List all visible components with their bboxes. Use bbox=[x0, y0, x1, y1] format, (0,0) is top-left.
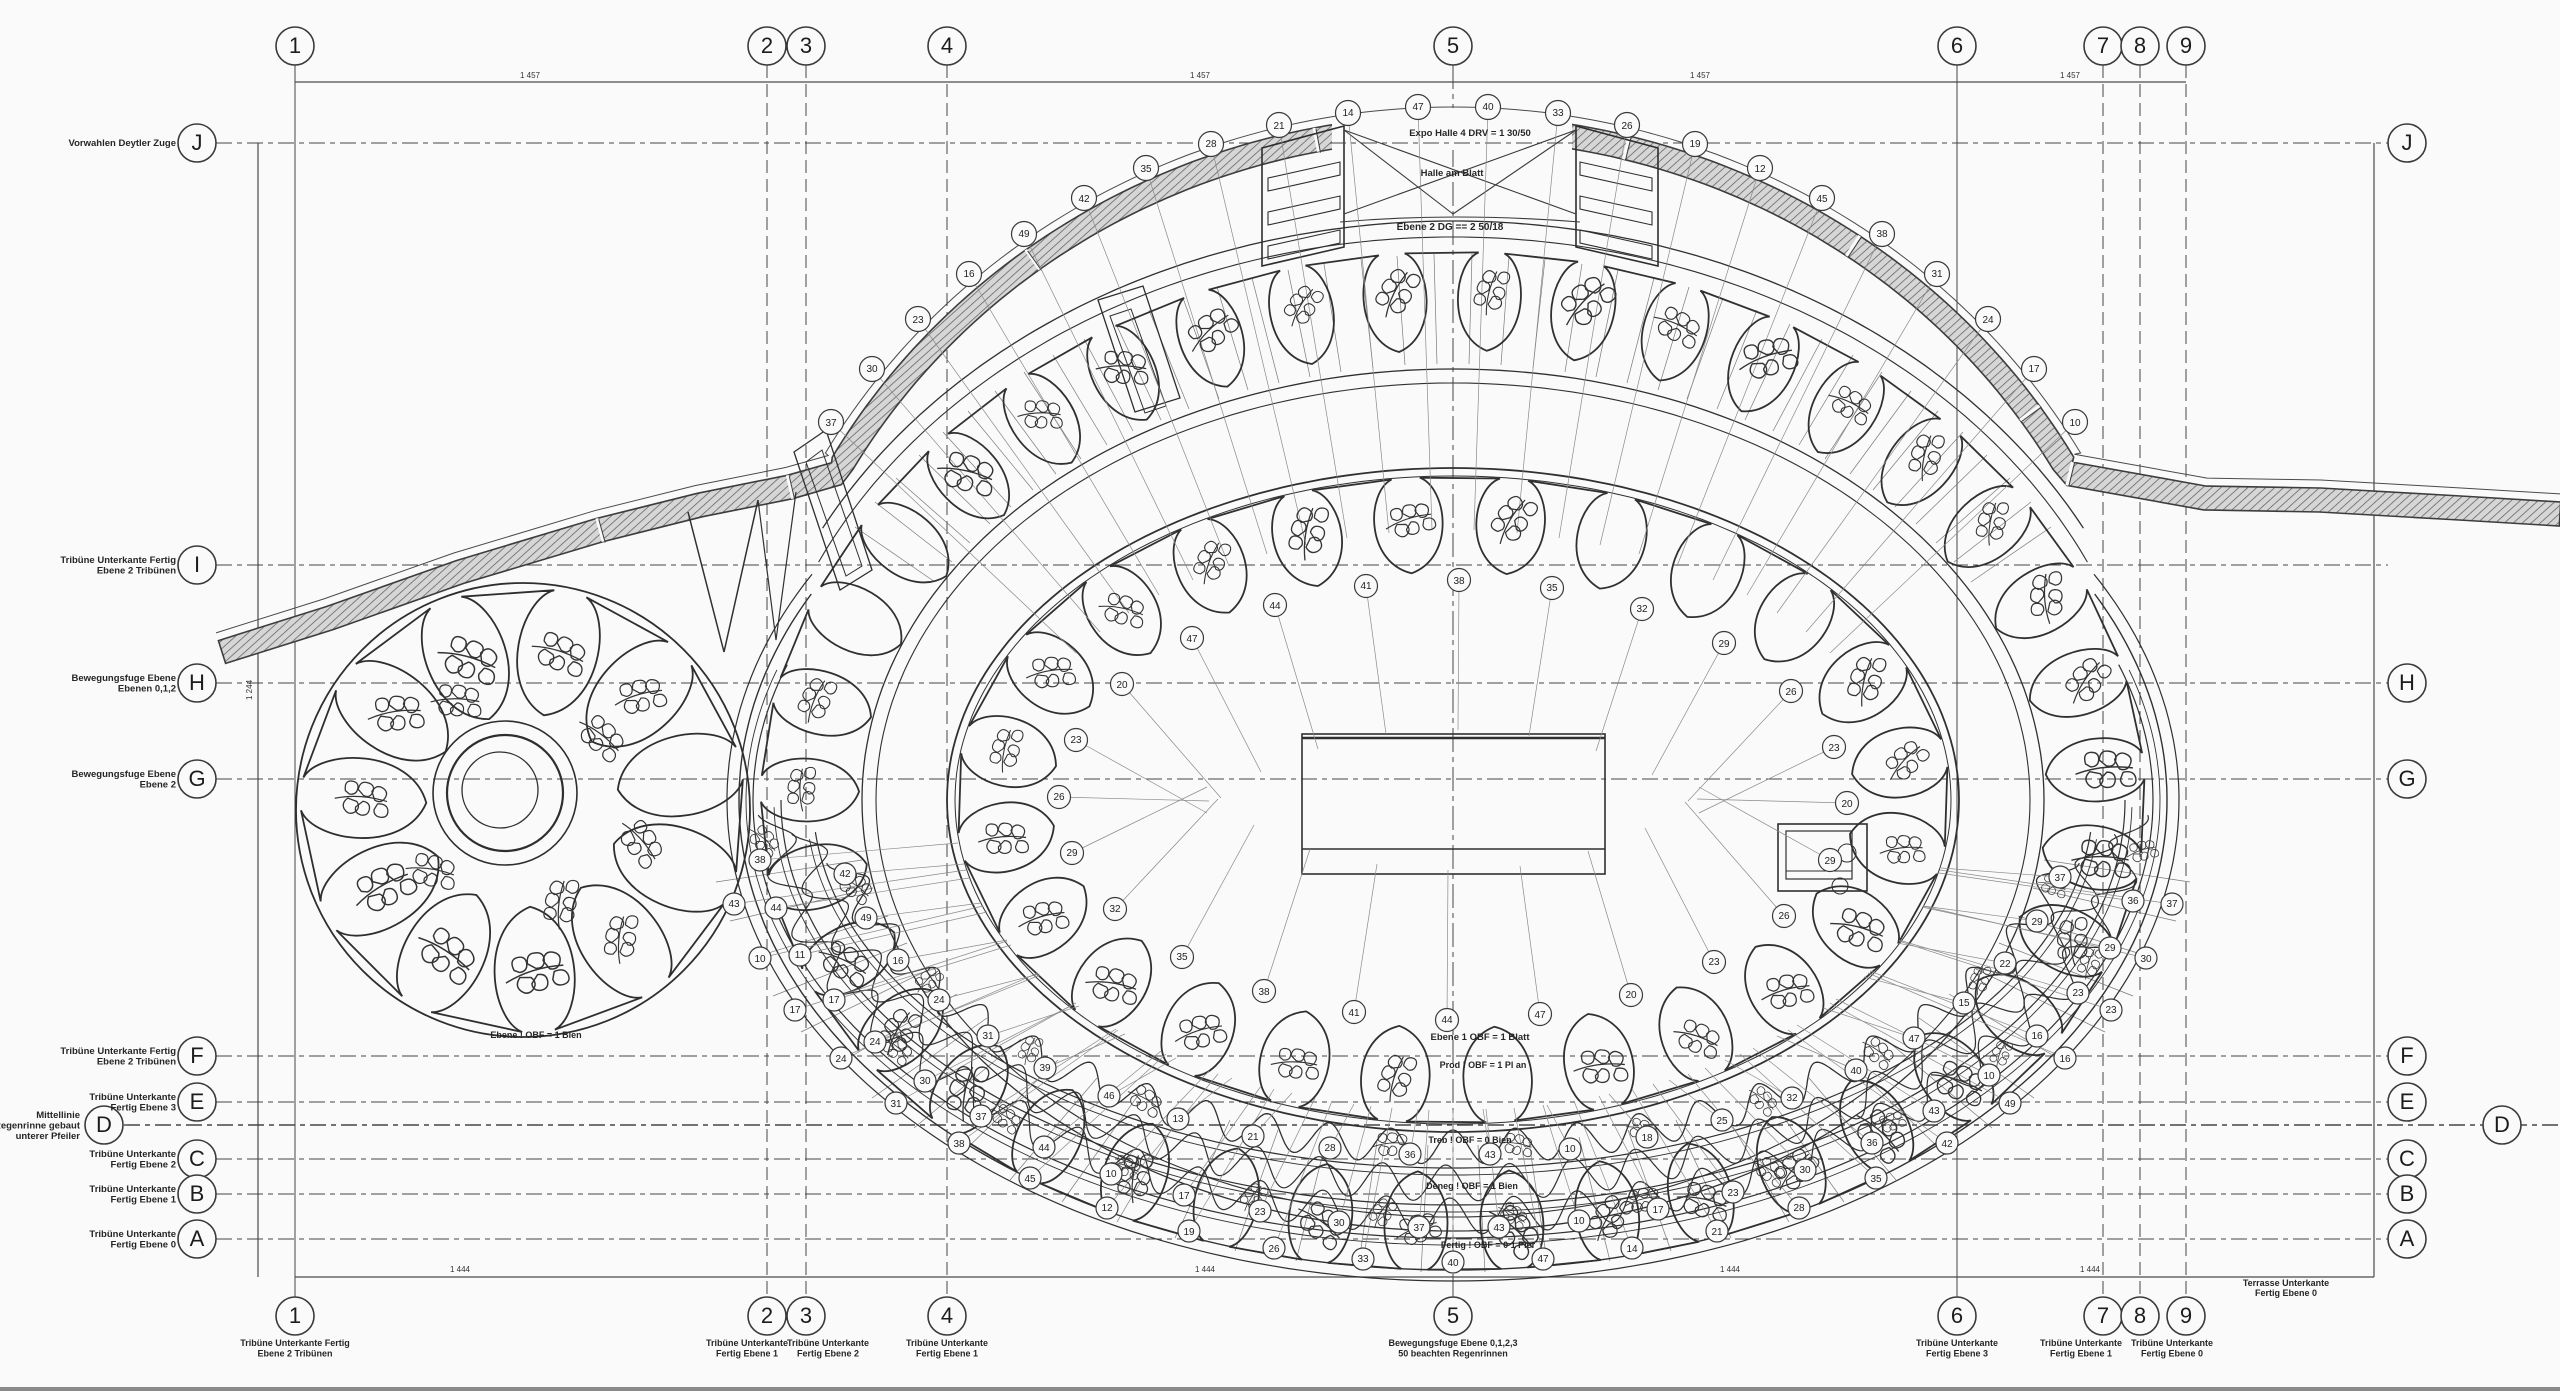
svg-text:30: 30 bbox=[919, 1076, 931, 1087]
svg-text:Fertig Ebene 3: Fertig Ebene 3 bbox=[111, 1103, 176, 1114]
svg-text:4: 4 bbox=[941, 1303, 953, 1328]
svg-text:Tribüne Unterkante: Tribüne Unterkante bbox=[2040, 1338, 2122, 1348]
svg-text:43: 43 bbox=[728, 899, 740, 910]
svg-text:Bewegungsfuge Ebene: Bewegungsfuge Ebene bbox=[71, 769, 176, 780]
svg-text:Tribüne Unterkante: Tribüne Unterkante bbox=[906, 1338, 988, 1348]
svg-text:Regenrinne gebaut: Regenrinne gebaut bbox=[0, 1121, 81, 1132]
svg-text:21: 21 bbox=[1711, 1227, 1723, 1238]
svg-text:Deneg ! OBF = 1 Bien: Deneg ! OBF = 1 Bien bbox=[1426, 1181, 1518, 1191]
svg-text:23: 23 bbox=[1070, 735, 1082, 746]
svg-text:41: 41 bbox=[1348, 1008, 1360, 1019]
svg-text:31: 31 bbox=[982, 1031, 994, 1042]
svg-text:2: 2 bbox=[761, 33, 773, 58]
svg-text:17: 17 bbox=[789, 1005, 801, 1016]
svg-text:24: 24 bbox=[1982, 315, 1994, 326]
svg-text:Fertig Ebene 0: Fertig Ebene 0 bbox=[111, 1240, 176, 1251]
svg-text:unterer Pfeiler: unterer Pfeiler bbox=[16, 1131, 81, 1142]
svg-text:Bewegungsfuge Ebene 0,1,2,3: Bewegungsfuge Ebene 0,1,2,3 bbox=[1388, 1338, 1517, 1348]
svg-text:35: 35 bbox=[1176, 952, 1188, 963]
svg-text:1 444: 1 444 bbox=[1195, 1265, 1216, 1274]
svg-text:44: 44 bbox=[770, 903, 782, 914]
svg-text:49: 49 bbox=[2004, 1099, 2016, 1110]
svg-text:Tribüne Unterkante Fertig: Tribüne Unterkante Fertig bbox=[240, 1338, 350, 1348]
svg-text:23: 23 bbox=[1828, 743, 1840, 754]
svg-text:1 457: 1 457 bbox=[2060, 71, 2081, 80]
svg-text:23: 23 bbox=[1727, 1188, 1739, 1199]
svg-text:30: 30 bbox=[866, 364, 878, 375]
svg-text:28: 28 bbox=[1324, 1143, 1336, 1154]
svg-text:37: 37 bbox=[975, 1112, 987, 1123]
svg-text:45: 45 bbox=[1816, 194, 1828, 205]
svg-text:26: 26 bbox=[1785, 687, 1797, 698]
svg-text:46: 46 bbox=[1103, 1091, 1115, 1102]
svg-text:1 444: 1 444 bbox=[450, 1265, 471, 1274]
svg-text:6: 6 bbox=[1951, 33, 1963, 58]
svg-text:18: 18 bbox=[1641, 1133, 1653, 1144]
svg-text:42: 42 bbox=[839, 869, 851, 880]
svg-text:24: 24 bbox=[869, 1037, 881, 1048]
svg-text:Tribüne Unterkante: Tribüne Unterkante bbox=[89, 1229, 176, 1240]
svg-text:Fertig Ebene 1: Fertig Ebene 1 bbox=[111, 1195, 177, 1206]
svg-text:Fertig Ebene 0: Fertig Ebene 0 bbox=[2141, 1349, 2203, 1359]
svg-text:29: 29 bbox=[1066, 848, 1078, 859]
svg-text:1: 1 bbox=[289, 1303, 301, 1328]
svg-text:Fertig Ebene 2: Fertig Ebene 2 bbox=[111, 1160, 176, 1171]
svg-text:37: 37 bbox=[1413, 1223, 1425, 1234]
svg-text:43: 43 bbox=[1493, 1223, 1505, 1234]
svg-text:A: A bbox=[190, 1226, 205, 1251]
svg-text:23: 23 bbox=[2105, 1005, 2117, 1016]
svg-text:36: 36 bbox=[1866, 1138, 1878, 1149]
svg-text:5: 5 bbox=[1447, 33, 1459, 58]
svg-text:49: 49 bbox=[1018, 229, 1030, 240]
svg-text:31: 31 bbox=[1931, 269, 1943, 280]
svg-text:14: 14 bbox=[1342, 108, 1354, 119]
svg-text:Tribüne Unterkante: Tribüne Unterkante bbox=[89, 1184, 176, 1195]
svg-text:C: C bbox=[189, 1146, 205, 1171]
svg-text:16: 16 bbox=[2059, 1054, 2071, 1065]
svg-text:37: 37 bbox=[2166, 899, 2178, 910]
svg-text:Tribüne Unterkante: Tribüne Unterkante bbox=[2131, 1338, 2213, 1348]
svg-text:8: 8 bbox=[2134, 1303, 2146, 1328]
svg-text:20: 20 bbox=[1841, 799, 1853, 810]
svg-text:Fertig ! OBF = 0 1 Pier: Fertig ! OBF = 0 1 Pier bbox=[1441, 1240, 1536, 1250]
svg-text:25: 25 bbox=[1716, 1116, 1728, 1127]
svg-text:36: 36 bbox=[2127, 896, 2139, 907]
svg-text:Tribüne Unterkante Fertig: Tribüne Unterkante Fertig bbox=[60, 1046, 176, 1057]
svg-text:29: 29 bbox=[2031, 917, 2043, 928]
svg-text:26: 26 bbox=[1268, 1244, 1280, 1255]
svg-text:24: 24 bbox=[933, 995, 945, 1006]
svg-text:38: 38 bbox=[953, 1139, 965, 1150]
svg-text:Fertig Ebene 1: Fertig Ebene 1 bbox=[716, 1349, 778, 1359]
svg-text:Bewegungsfuge Ebene: Bewegungsfuge Ebene bbox=[71, 673, 176, 684]
svg-text:Ebenen 0,1,2: Ebenen 0,1,2 bbox=[118, 684, 176, 695]
svg-text:C: C bbox=[2399, 1146, 2415, 1171]
svg-text:10: 10 bbox=[2069, 418, 2081, 429]
svg-text:44: 44 bbox=[1441, 1015, 1453, 1026]
svg-text:Ebene 2 DG == 2 50/18: Ebene 2 DG == 2 50/18 bbox=[1397, 222, 1504, 233]
svg-text:33: 33 bbox=[1552, 108, 1564, 119]
svg-text:Ebene 2 Tribünen: Ebene 2 Tribünen bbox=[257, 1349, 332, 1359]
svg-text:23: 23 bbox=[1708, 957, 1720, 968]
svg-text:50 beachten Regenrinnen: 50 beachten Regenrinnen bbox=[1398, 1349, 1508, 1359]
svg-text:Ebene ! OBF = 1 Bien: Ebene ! OBF = 1 Bien bbox=[490, 1030, 581, 1040]
svg-text:49: 49 bbox=[860, 913, 872, 924]
svg-text:45: 45 bbox=[1024, 1174, 1036, 1185]
svg-text:29: 29 bbox=[2104, 943, 2116, 954]
svg-text:6: 6 bbox=[1951, 1303, 1963, 1328]
svg-text:Ebene 2: Ebene 2 bbox=[140, 780, 176, 791]
svg-text:41: 41 bbox=[1360, 581, 1372, 592]
svg-text:Tribüne Unterkante Fertig: Tribüne Unterkante Fertig bbox=[60, 555, 176, 566]
svg-text:F: F bbox=[2400, 1043, 2413, 1068]
svg-text:21: 21 bbox=[1273, 121, 1285, 132]
svg-text:Ebene 2 Tribünen: Ebene 2 Tribünen bbox=[97, 566, 176, 577]
svg-text:9: 9 bbox=[2180, 33, 2192, 58]
svg-text:3: 3 bbox=[800, 1303, 812, 1328]
svg-text:44: 44 bbox=[1038, 1143, 1050, 1154]
svg-text:22: 22 bbox=[1999, 959, 2011, 970]
svg-text:35: 35 bbox=[1546, 583, 1558, 594]
svg-text:Mittellinie: Mittellinie bbox=[36, 1110, 80, 1121]
svg-text:23: 23 bbox=[2072, 988, 2084, 999]
svg-text:Halle am Blatt: Halle am Blatt bbox=[1421, 168, 1485, 179]
svg-text:40: 40 bbox=[1850, 1066, 1862, 1077]
svg-text:J: J bbox=[2402, 130, 2413, 155]
svg-text:26: 26 bbox=[1621, 121, 1633, 132]
svg-text:4: 4 bbox=[941, 33, 953, 58]
svg-text:Fertig Ebene 3: Fertig Ebene 3 bbox=[1926, 1349, 1988, 1359]
svg-text:38: 38 bbox=[1876, 229, 1888, 240]
svg-text:Fertig Ebene 1: Fertig Ebene 1 bbox=[916, 1349, 978, 1359]
svg-text:30: 30 bbox=[2140, 954, 2152, 965]
svg-text:Treb ! OBF = 0 Bien: Treb ! OBF = 0 Bien bbox=[1428, 1135, 1511, 1145]
svg-text:10: 10 bbox=[1105, 1169, 1117, 1180]
svg-text:16: 16 bbox=[963, 269, 975, 280]
svg-text:Tribüne Unterkante: Tribüne Unterkante bbox=[706, 1338, 788, 1348]
svg-text:1 457: 1 457 bbox=[1690, 71, 1711, 80]
svg-text:43: 43 bbox=[1928, 1106, 1940, 1117]
svg-text:B: B bbox=[190, 1181, 205, 1206]
svg-text:24: 24 bbox=[835, 1054, 847, 1065]
svg-text:10: 10 bbox=[754, 954, 766, 965]
svg-text:G: G bbox=[2398, 766, 2415, 791]
svg-text:7: 7 bbox=[2097, 1303, 2109, 1328]
svg-text:17: 17 bbox=[1652, 1205, 1664, 1216]
svg-text:37: 37 bbox=[2054, 873, 2066, 884]
svg-text:5: 5 bbox=[1447, 1303, 1459, 1328]
svg-text:40: 40 bbox=[1447, 1258, 1459, 1269]
svg-text:Fertig Ebene 2: Fertig Ebene 2 bbox=[797, 1349, 859, 1359]
svg-text:42: 42 bbox=[1078, 194, 1090, 205]
svg-text:Expo Halle 4 DRV = 1 30/50: Expo Halle 4 DRV = 1 30/50 bbox=[1409, 128, 1531, 139]
svg-text:47: 47 bbox=[1534, 1010, 1546, 1021]
svg-text:32: 32 bbox=[1109, 904, 1121, 915]
svg-text:23: 23 bbox=[912, 315, 924, 326]
svg-text:44: 44 bbox=[1269, 601, 1281, 612]
svg-text:13: 13 bbox=[1172, 1114, 1184, 1125]
svg-text:1 444: 1 444 bbox=[2080, 1265, 2101, 1274]
svg-text:33: 33 bbox=[1357, 1254, 1369, 1265]
svg-text:G: G bbox=[188, 766, 205, 791]
svg-text:32: 32 bbox=[1636, 604, 1648, 615]
svg-text:42: 42 bbox=[1941, 1139, 1953, 1150]
svg-text:10: 10 bbox=[1573, 1216, 1585, 1227]
svg-text:3: 3 bbox=[800, 33, 812, 58]
svg-text:26: 26 bbox=[1778, 911, 1790, 922]
svg-text:1 244: 1 244 bbox=[245, 679, 254, 700]
svg-text:28: 28 bbox=[1793, 1203, 1805, 1214]
svg-text:35: 35 bbox=[1140, 164, 1152, 175]
svg-text:Tribüne Unterkante: Tribüne Unterkante bbox=[787, 1338, 869, 1348]
svg-text:37: 37 bbox=[825, 418, 837, 429]
svg-text:1: 1 bbox=[289, 33, 301, 58]
svg-text:17: 17 bbox=[2028, 364, 2040, 375]
svg-text:J: J bbox=[192, 130, 203, 155]
svg-text:Tribüne Unterkante: Tribüne Unterkante bbox=[89, 1092, 176, 1103]
svg-text:30: 30 bbox=[1799, 1165, 1811, 1176]
svg-text:Terrasse Unterkante: Terrasse Unterkante bbox=[2243, 1278, 2329, 1288]
svg-text:32: 32 bbox=[1786, 1093, 1798, 1104]
svg-text:39: 39 bbox=[1039, 1063, 1051, 1074]
svg-text:8: 8 bbox=[2134, 33, 2146, 58]
svg-text:12: 12 bbox=[1754, 164, 1766, 175]
svg-text:D: D bbox=[96, 1112, 112, 1137]
svg-text:Tribüne Unterkante: Tribüne Unterkante bbox=[89, 1149, 176, 1160]
svg-text:16: 16 bbox=[892, 956, 904, 967]
svg-text:28: 28 bbox=[1205, 139, 1217, 150]
svg-text:47: 47 bbox=[1412, 102, 1424, 113]
svg-text:Prod ! OBF = 1 Pl an: Prod ! OBF = 1 Pl an bbox=[1440, 1060, 1527, 1070]
svg-text:12: 12 bbox=[1101, 1203, 1113, 1214]
svg-text:16: 16 bbox=[2031, 1031, 2043, 1042]
svg-text:1 457: 1 457 bbox=[520, 71, 541, 80]
svg-text:9: 9 bbox=[2180, 1303, 2192, 1328]
svg-text:29: 29 bbox=[1718, 639, 1730, 650]
svg-text:26: 26 bbox=[1053, 792, 1065, 803]
svg-text:H: H bbox=[189, 670, 205, 695]
svg-text:23: 23 bbox=[1254, 1207, 1266, 1218]
svg-text:11: 11 bbox=[795, 950, 806, 961]
svg-text:10: 10 bbox=[1564, 1144, 1576, 1155]
svg-text:20: 20 bbox=[1116, 680, 1128, 691]
svg-text:14: 14 bbox=[1626, 1244, 1638, 1255]
svg-text:47: 47 bbox=[1186, 634, 1198, 645]
svg-text:17: 17 bbox=[1178, 1191, 1190, 1202]
svg-text:17: 17 bbox=[828, 995, 840, 1006]
svg-text:Vorwahlen Deytler Zuge: Vorwahlen Deytler Zuge bbox=[68, 138, 176, 149]
svg-text:F: F bbox=[190, 1043, 203, 1068]
svg-text:I: I bbox=[194, 552, 200, 577]
svg-text:2: 2 bbox=[761, 1303, 773, 1328]
svg-text:36: 36 bbox=[1404, 1150, 1416, 1161]
svg-text:47: 47 bbox=[1537, 1254, 1549, 1265]
svg-text:H: H bbox=[2399, 670, 2415, 695]
svg-text:Fertig Ebene 1: Fertig Ebene 1 bbox=[2050, 1349, 2112, 1359]
svg-text:D: D bbox=[2494, 1112, 2510, 1137]
svg-text:40: 40 bbox=[1482, 102, 1494, 113]
svg-text:47: 47 bbox=[1908, 1034, 1920, 1045]
svg-text:20: 20 bbox=[1625, 990, 1637, 1001]
svg-text:35: 35 bbox=[1870, 1174, 1882, 1185]
svg-text:31: 31 bbox=[890, 1099, 902, 1110]
svg-text:15: 15 bbox=[1958, 998, 1970, 1009]
svg-text:19: 19 bbox=[1689, 139, 1701, 150]
svg-text:1 444: 1 444 bbox=[1720, 1265, 1741, 1274]
svg-text:19: 19 bbox=[1183, 1227, 1195, 1238]
svg-text:A: A bbox=[2400, 1226, 2415, 1251]
svg-text:Tribüne Unterkante: Tribüne Unterkante bbox=[1916, 1338, 1998, 1348]
svg-text:Ebene 2 Tribünen: Ebene 2 Tribünen bbox=[97, 1057, 176, 1068]
svg-text:43: 43 bbox=[1484, 1150, 1496, 1161]
svg-text:Fertig Ebene 0: Fertig Ebene 0 bbox=[2255, 1288, 2317, 1298]
svg-text:38: 38 bbox=[1453, 576, 1465, 587]
svg-text:7: 7 bbox=[2097, 33, 2109, 58]
svg-text:30: 30 bbox=[1333, 1218, 1345, 1229]
svg-text:21: 21 bbox=[1247, 1132, 1259, 1143]
svg-text:10: 10 bbox=[1983, 1071, 1995, 1082]
svg-text:29: 29 bbox=[1824, 856, 1836, 867]
svg-text:Ebene 1 OBF = 1 Blatt: Ebene 1 OBF = 1 Blatt bbox=[1431, 1032, 1531, 1043]
svg-text:38: 38 bbox=[754, 855, 766, 866]
svg-text:B: B bbox=[2400, 1181, 2415, 1206]
svg-text:1 457: 1 457 bbox=[1190, 71, 1211, 80]
svg-text:E: E bbox=[2400, 1089, 2415, 1114]
svg-text:38: 38 bbox=[1258, 987, 1270, 998]
svg-text:E: E bbox=[190, 1089, 205, 1114]
